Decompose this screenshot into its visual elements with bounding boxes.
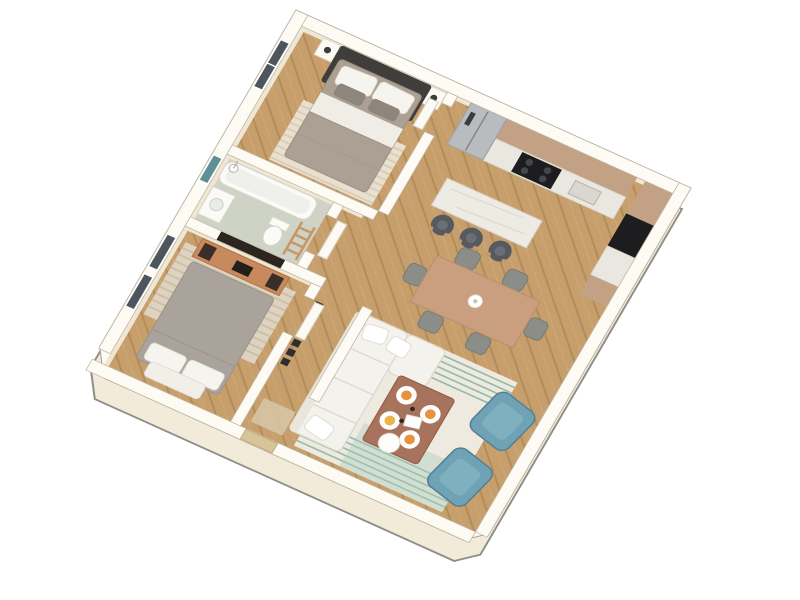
floorplan-render [0, 0, 800, 600]
floor-plan [86, 10, 691, 548]
floorplan-svg [0, 0, 800, 600]
